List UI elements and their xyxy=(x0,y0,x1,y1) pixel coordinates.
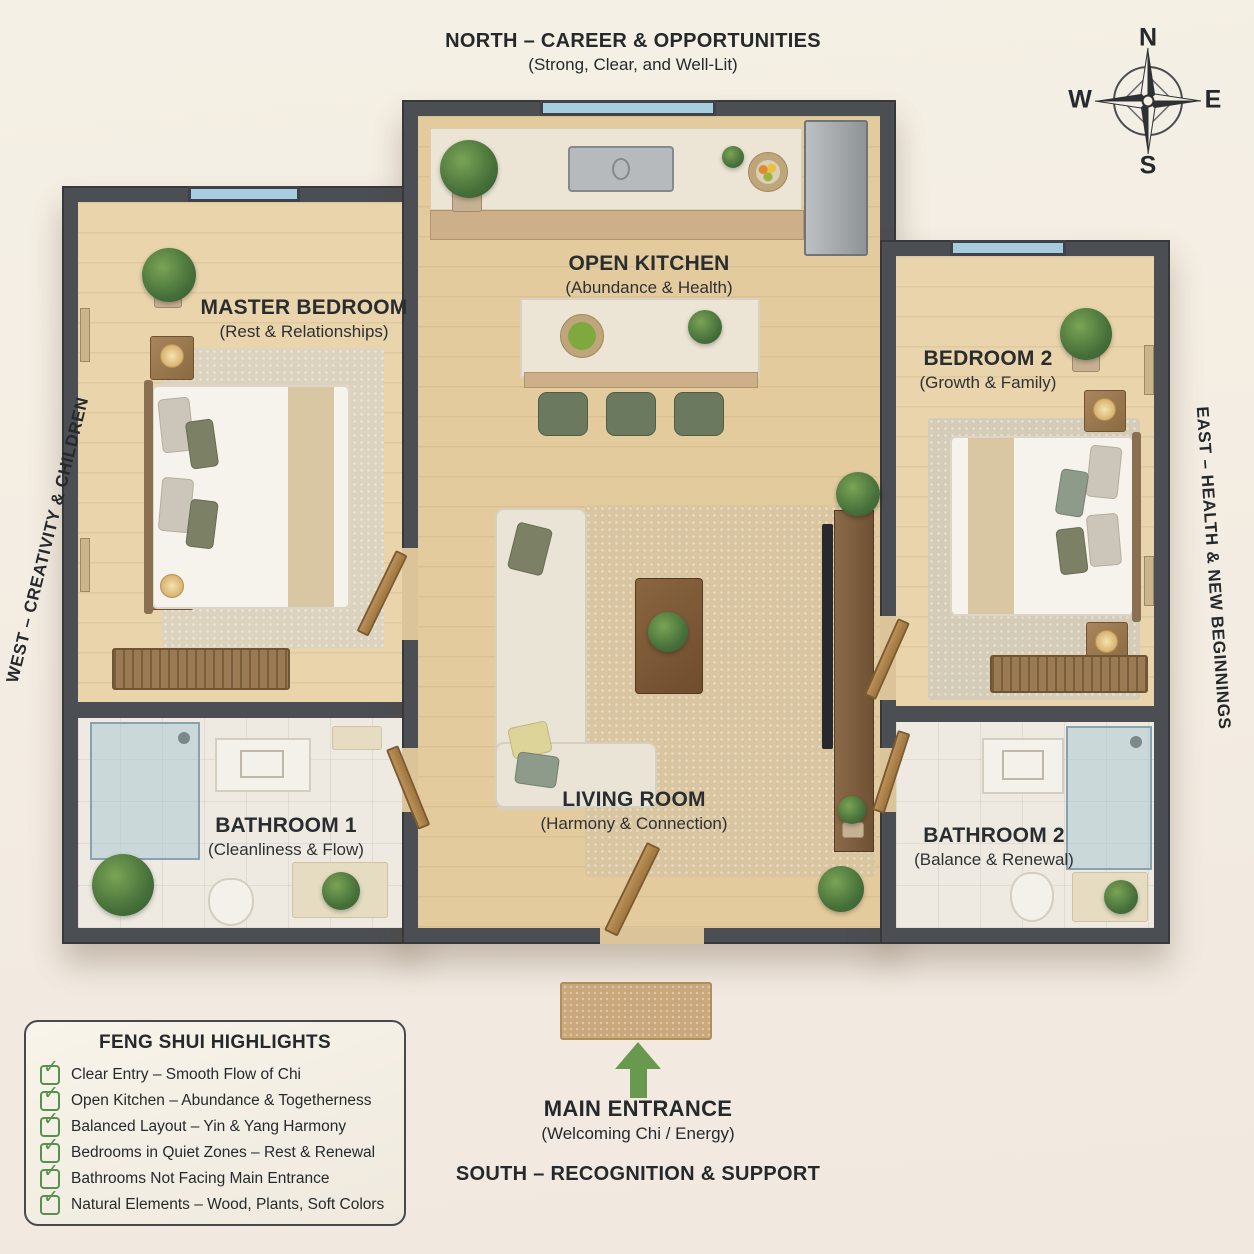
bed-headboard xyxy=(1132,432,1141,622)
legend-item-text: Natural Elements – Wood, Plants, Soft Co… xyxy=(71,1196,384,1214)
feng-shui-highlights-panel: FENG SHUI HIGHLIGHTS ✓ Clear Entry – Smo… xyxy=(24,1020,406,1226)
wall-art-frame xyxy=(1144,345,1154,395)
bar-stool xyxy=(674,392,724,436)
checkbox-check-icon: ✓ xyxy=(40,1091,60,1111)
entrance-arrow-stem xyxy=(630,1068,647,1098)
bed-throw-blanket xyxy=(288,387,334,607)
bathroom-plant-icon xyxy=(322,872,360,910)
kitchen-cabinets xyxy=(430,210,804,240)
legend-item: ✓ Bedrooms in Quiet Zones – Rest & Renew… xyxy=(40,1140,390,1166)
console-plant-icon xyxy=(838,796,866,824)
checkbox-check-icon: ✓ xyxy=(40,1065,60,1085)
compass-south-label: S xyxy=(1140,152,1157,181)
wall-art-frame xyxy=(80,308,90,362)
bar-stool xyxy=(606,392,656,436)
bathroom-1-label: BATHROOM 1 (Cleanliness & Flow) xyxy=(208,814,364,860)
bathroom-2-label: BATHROOM 2 (Balance & Renewal) xyxy=(914,824,1074,870)
toilet xyxy=(208,878,254,926)
legend-item-text: Balanced Layout – Yin & Yang Harmony xyxy=(71,1118,346,1136)
entrance-arrow-icon xyxy=(615,1042,661,1069)
south-direction-title: SOUTH – RECOGNITION & SUPPORT xyxy=(456,1163,820,1186)
tv-screen xyxy=(822,524,833,749)
compass-east-label: E xyxy=(1205,86,1222,115)
apple-bowl-icon xyxy=(560,314,604,358)
legend-item: ✓ Clear Entry – Smooth Flow of Chi xyxy=(40,1062,390,1088)
pillow xyxy=(1055,526,1088,575)
island-plant-icon xyxy=(688,310,722,344)
legend-item: ✓ Bathrooms Not Facing Main Entrance xyxy=(40,1166,390,1192)
table-lamp-icon xyxy=(160,344,184,368)
north-direction-title: NORTH – CAREER & OPPORTUNITIES xyxy=(445,30,821,53)
coffee-table-plant-icon xyxy=(648,612,688,652)
shower-enclosure xyxy=(90,722,200,860)
legend-item-text: Bathrooms Not Facing Main Entrance xyxy=(71,1170,329,1188)
bathroom-plant-icon xyxy=(92,854,154,916)
faucet-icon xyxy=(612,158,630,180)
legend-title: FENG SHUI HIGHLIGHTS xyxy=(40,1032,390,1054)
shower-enclosure xyxy=(1066,726,1152,870)
main-entrance-title: MAIN ENTRANCE xyxy=(544,1096,732,1122)
toilet xyxy=(1010,872,1054,922)
checkbox-check-icon: ✓ xyxy=(40,1143,60,1163)
plant-pot xyxy=(842,822,864,838)
main-entrance-subtitle: (Welcoming Chi / Energy) xyxy=(541,1124,734,1144)
bedroom-bench xyxy=(112,648,290,690)
vanity-sink xyxy=(240,750,284,778)
master-bedroom-skylight-window xyxy=(188,186,300,202)
east-direction-label: EAST – HEALTH & NEW BEGINNINGS xyxy=(1192,406,1235,730)
pillow xyxy=(185,498,219,549)
legend-item: ✓ Balanced Layout – Yin & Yang Harmony xyxy=(40,1114,390,1140)
wall-art-frame xyxy=(80,538,90,592)
table-lamp-icon xyxy=(1093,398,1116,421)
entrance-doormat xyxy=(560,982,712,1040)
compass-rose-icon xyxy=(1083,36,1213,166)
bed-headboard xyxy=(144,380,153,614)
pillow xyxy=(514,751,560,789)
vanity-sink xyxy=(1002,750,1044,780)
pillow xyxy=(1086,513,1122,568)
table-lamp-icon xyxy=(160,574,184,598)
legend-item-text: Clear Entry – Smooth Flow of Chi xyxy=(71,1066,301,1084)
bath-mat xyxy=(332,726,382,750)
fruit-bowl-icon xyxy=(748,152,788,192)
north-direction-subtitle: (Strong, Clear, and Well-Lit) xyxy=(528,55,737,75)
living-room-label: LIVING ROOM (Harmony & Connection) xyxy=(540,788,727,834)
master-bedroom-label: MASTER BEDROOM (Rest & Relationships) xyxy=(201,296,408,342)
entry-plant-icon xyxy=(818,866,864,912)
kitchen-plant-icon xyxy=(440,140,498,198)
bedroom-2-skylight-window xyxy=(950,240,1066,256)
checkbox-check-icon: ✓ xyxy=(40,1169,60,1189)
checkbox-check-icon: ✓ xyxy=(40,1117,60,1137)
kitchen-island-base xyxy=(524,372,758,388)
compass-north-label: N xyxy=(1139,24,1157,53)
master-bedroom-plant-icon xyxy=(142,248,196,302)
refrigerator xyxy=(804,120,868,256)
bedroom-bench xyxy=(990,655,1148,693)
bed-throw-blanket xyxy=(968,438,1014,614)
bathroom-plant-icon xyxy=(1104,880,1138,914)
bar-stool xyxy=(538,392,588,436)
living-room-plant-icon xyxy=(836,472,880,516)
legend-item: ✓ Natural Elements – Wood, Plants, Soft … xyxy=(40,1192,390,1218)
open-kitchen-label: OPEN KITCHEN (Abundance & Health) xyxy=(565,252,732,298)
kitchen-island xyxy=(520,298,760,378)
table-lamp-icon xyxy=(1095,630,1118,653)
wall-art-frame xyxy=(1144,556,1154,606)
feng-shui-floor-plan-poster: NORTH – CAREER & OPPORTUNITIES (Strong, … xyxy=(0,0,1254,1254)
legend-item-text: Open Kitchen – Abundance & Togetherness xyxy=(71,1092,371,1110)
checkbox-check-icon: ✓ xyxy=(40,1195,60,1215)
bedroom-2-plant-icon xyxy=(1060,308,1112,360)
legend-item-text: Bedrooms in Quiet Zones – Rest & Renewal xyxy=(71,1144,375,1162)
counter-plant-icon xyxy=(722,146,744,168)
bedroom-2-label: BEDROOM 2 (Growth & Family) xyxy=(920,347,1057,393)
legend-item: ✓ Open Kitchen – Abundance & Togethernes… xyxy=(40,1088,390,1114)
pillow xyxy=(1085,444,1122,499)
compass-west-label: W xyxy=(1068,86,1092,115)
kitchen-window xyxy=(540,100,716,116)
